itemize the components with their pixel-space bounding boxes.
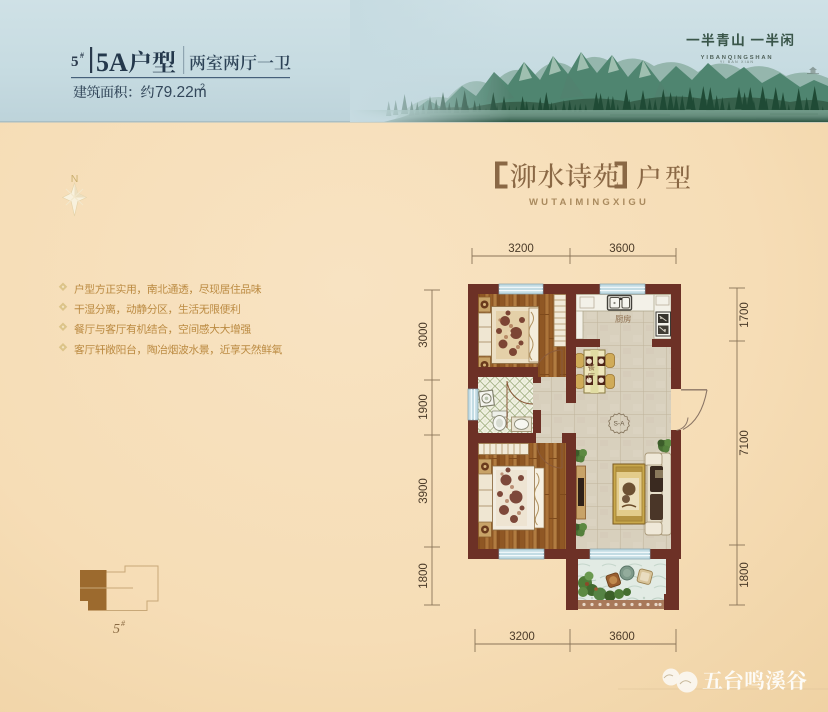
svg-text:3600: 3600 [609,631,635,643]
svg-text:1800: 1800 [739,562,751,588]
svg-text:WUTAIMINGXIGU: WUTAIMINGXIGU [529,197,649,208]
svg-text:1800: 1800 [418,563,430,589]
svg-text:S-A: S-A [614,420,626,427]
svg-text:#: # [80,51,84,60]
svg-text:5: 5 [71,54,79,70]
svg-text:N: N [71,173,79,185]
svg-text:1700: 1700 [739,302,751,328]
svg-text:YI BAN XIAN: YI BAN XIAN [720,60,754,64]
svg-text:5: 5 [113,622,120,637]
svg-text:3600: 3600 [609,243,635,255]
svg-text:79.22m: 79.22m [155,84,207,101]
svg-text:3000: 3000 [418,322,430,348]
svg-text:5A: 5A [96,48,128,77]
svg-text:3900: 3900 [418,478,430,504]
svg-text:1900: 1900 [418,394,430,420]
svg-text:3200: 3200 [508,243,534,255]
svg-text:3200: 3200 [509,631,535,643]
svg-text:7100: 7100 [739,430,751,456]
svg-text:2: 2 [200,82,205,92]
